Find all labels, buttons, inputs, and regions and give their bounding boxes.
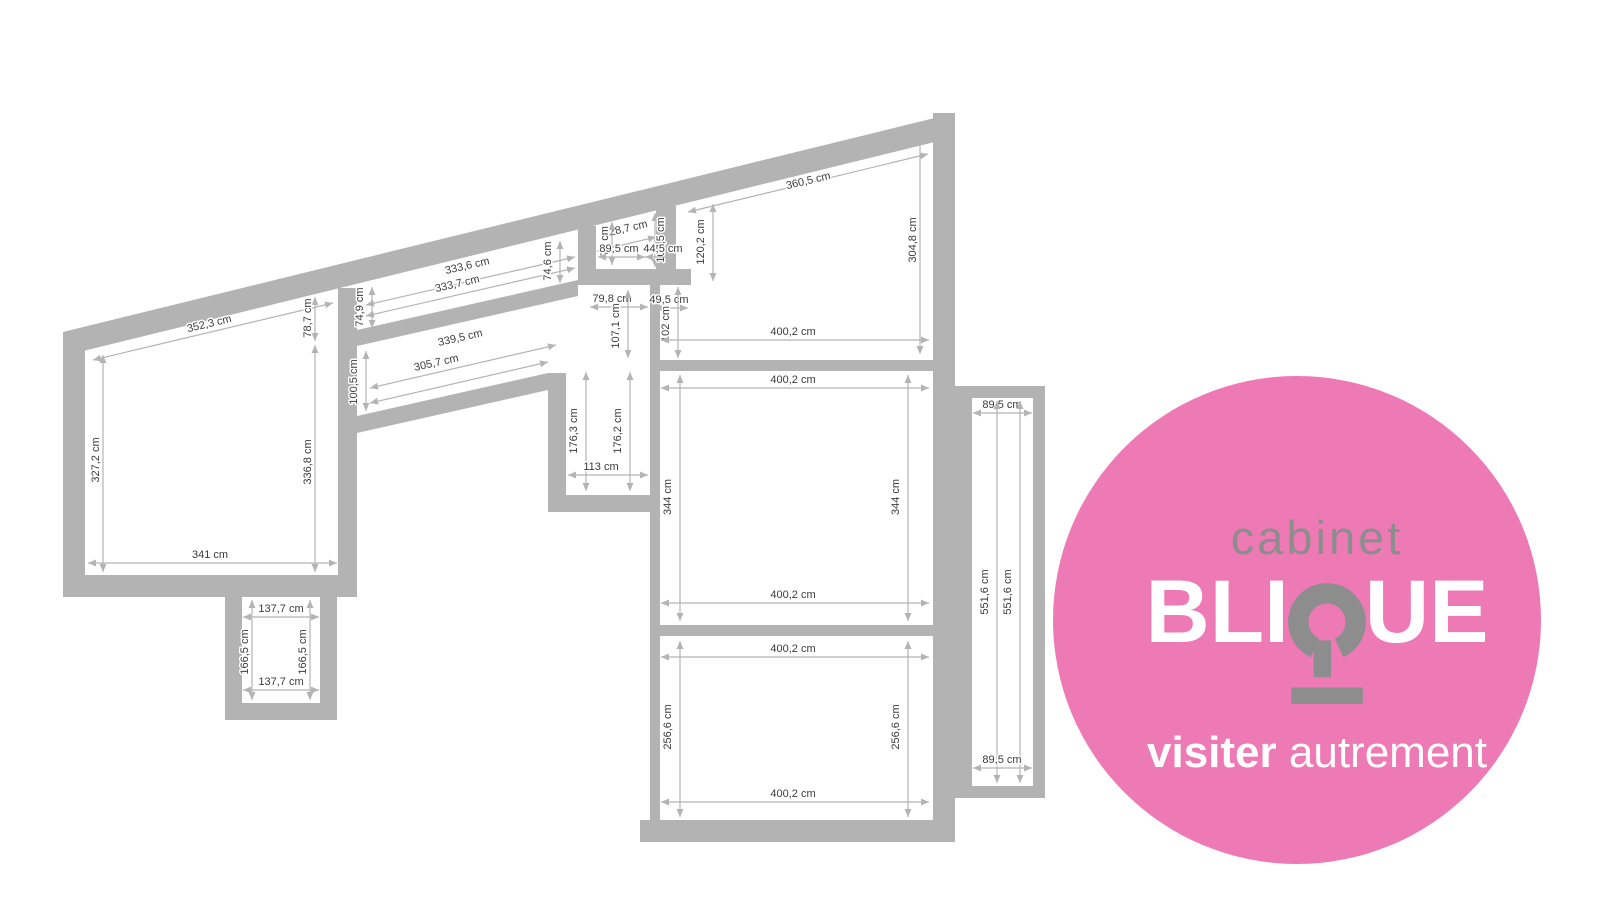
dimension-label: 400,2 cm bbox=[770, 643, 815, 655]
dimension-label: 102 cm bbox=[660, 306, 672, 342]
logo-top-word: cabinet bbox=[1093, 514, 1541, 561]
dimension-label: 74,9 cm bbox=[354, 287, 366, 326]
wall bbox=[650, 360, 955, 371]
dimension-label: 107,5 cm bbox=[655, 217, 667, 262]
dimension-label: 336,8 cm bbox=[302, 439, 314, 484]
dimension-label: 256,6 cm bbox=[662, 704, 674, 749]
wall bbox=[63, 575, 357, 597]
dimension-label: 166,5 cm bbox=[297, 629, 309, 674]
dimension-label: 166,5 cm bbox=[239, 629, 251, 674]
logo-brand-suffix: UE bbox=[1365, 567, 1489, 656]
logo-tagline: visiter autrement bbox=[1093, 731, 1541, 775]
dimension-label: 120,2 cm bbox=[695, 219, 707, 264]
dimension-label: 113 cm bbox=[583, 461, 618, 473]
dimension-label: 344 cm bbox=[890, 479, 902, 515]
wall bbox=[950, 786, 1045, 798]
tagline-light: autrement bbox=[1289, 728, 1487, 777]
dimension-label: 327,2 cm bbox=[90, 437, 102, 482]
dimension-label: 176,3 cm bbox=[568, 408, 580, 453]
dimension-label: 400,2 cm bbox=[770, 326, 815, 338]
dimension-label: 44,5 cm bbox=[643, 243, 682, 255]
wall bbox=[63, 113, 955, 356]
dimension-label: 400,2 cm bbox=[770, 788, 815, 800]
dimension-label: 89,5 cm bbox=[982, 754, 1021, 766]
dimension-label: 107,1 cm bbox=[610, 303, 622, 348]
dimension-label: 137,7 cm bbox=[258, 603, 303, 615]
dimension-label: 137,7 cm bbox=[258, 676, 303, 688]
dimension-label: 400,2 cm bbox=[770, 589, 815, 601]
dimension-label: 79,8 cm bbox=[592, 293, 631, 305]
dimension-label: 551,6 cm bbox=[979, 569, 991, 614]
wall bbox=[548, 373, 566, 512]
dimension-label: 89,5 cm bbox=[599, 243, 638, 255]
tagline-bold: visiter bbox=[1147, 728, 1277, 777]
wall bbox=[650, 625, 955, 636]
agency-logo-badge: cabinet BLI UE visiter autrement bbox=[1053, 376, 1541, 864]
dimension-label: 176,2 cm bbox=[612, 408, 624, 453]
wall bbox=[320, 590, 337, 720]
dimension-label: 74,6 cm bbox=[542, 241, 554, 280]
stylized-q-icon bbox=[1286, 579, 1368, 712]
wall bbox=[950, 386, 972, 798]
dimension-label: 341 cm bbox=[192, 549, 228, 561]
logo-brand: BLI UE bbox=[1093, 567, 1541, 707]
wall bbox=[1033, 386, 1045, 798]
wall bbox=[63, 338, 85, 597]
wall bbox=[950, 386, 1045, 398]
dimension-label: 78,7 cm bbox=[302, 298, 314, 337]
dimension-label: 49,5 cm bbox=[649, 294, 688, 306]
wall bbox=[338, 288, 357, 597]
dimension-label: 100,5 cm bbox=[348, 359, 360, 404]
dimension-label: 89,5 cm bbox=[982, 399, 1021, 411]
dimension-label: 400,2 cm bbox=[770, 374, 815, 386]
dimension-label: 305,7 cm bbox=[413, 352, 460, 374]
wall bbox=[357, 373, 548, 433]
dimension-label: 344 cm bbox=[662, 479, 674, 515]
dimension-label: 256,6 cm bbox=[890, 704, 902, 749]
dimension-label: 339,5 cm bbox=[437, 327, 484, 349]
dimension-label: 551,6 cm bbox=[1002, 569, 1014, 614]
dimension-label: 304,8 cm bbox=[907, 217, 919, 262]
wall bbox=[640, 820, 955, 842]
logo-brand-prefix: BLI bbox=[1145, 567, 1288, 656]
q-underline-bar bbox=[1291, 687, 1363, 703]
wall bbox=[548, 495, 660, 512]
